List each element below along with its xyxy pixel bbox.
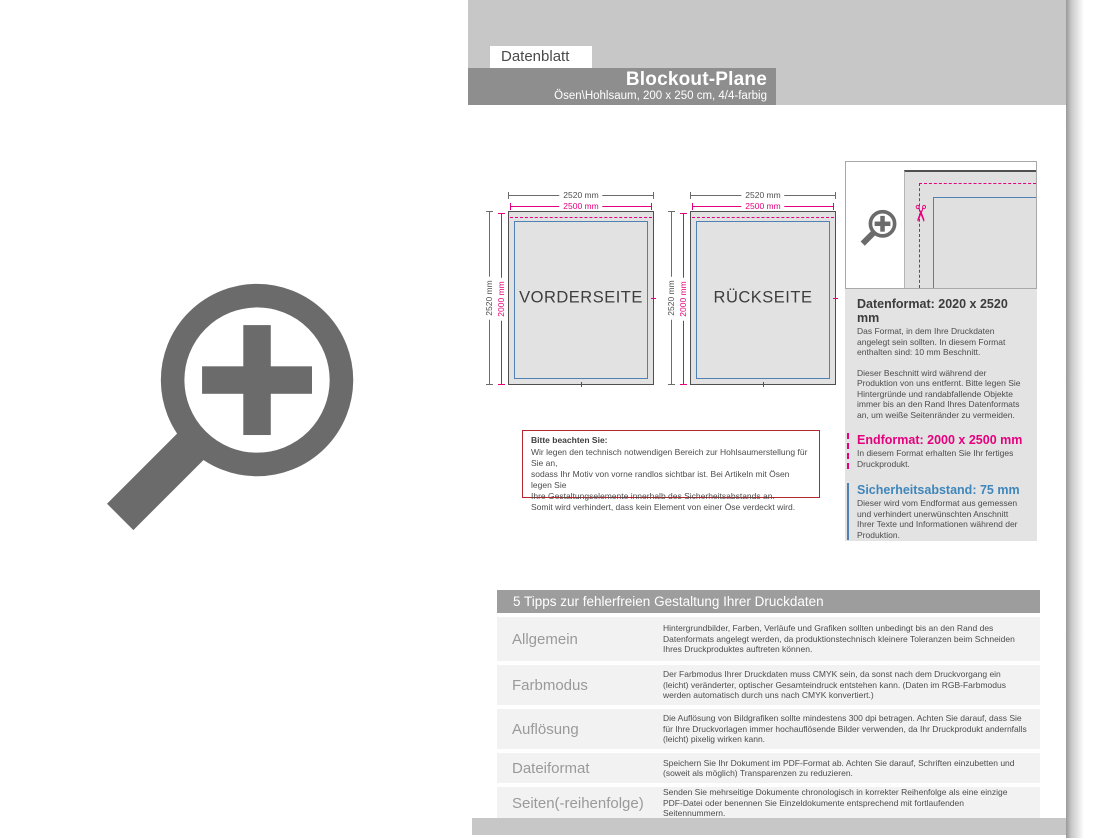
title-bar: Blockout-Plane Ösen\Hohlsaum, 200 x 250 …: [468, 68, 776, 105]
datasheet-page: Datenblatt Blockout-Plane Ösen\Hohlsaum,…: [468, 0, 1066, 838]
cut-line: [692, 217, 834, 218]
banner-corner-zoom: ✂: [904, 170, 1036, 288]
datenformat-para1: Das Format, in dem Ihre Druckdaten angel…: [857, 326, 1027, 358]
row-text: Hintergrundbilder, Farben, Verläufe und …: [663, 617, 1040, 661]
front-banner-outline: VORDERSEITE: [508, 211, 654, 385]
endformat-heading: Endformat: 2000 x 2500 mm: [857, 433, 1027, 447]
dim-height-endformat: 2000 mm: [676, 213, 690, 385]
dim-height-endformat: 2000 mm: [494, 213, 508, 385]
screenshot-root: Datenblatt Blockout-Plane Ösen\Hohlsaum,…: [0, 0, 1117, 838]
corner-detail-panel: ✂: [845, 161, 1037, 289]
note-line: Ihre Gestaltungselemente innerhalb des S…: [531, 491, 811, 502]
endformat-text: In diesem Format erhalten Sie Ihr fertig…: [857, 448, 1027, 469]
table-row: Seiten(-reihenfolge) Senden Sie mehrseit…: [497, 787, 1040, 819]
dim-label: 2000 mm: [678, 277, 688, 320]
center-tick: [763, 382, 764, 387]
endformat-block: Endformat: 2000 x 2500 mm In diesem Form…: [847, 433, 1027, 469]
dim-label: 2000 mm: [496, 277, 506, 320]
row-label: Seiten(-reihenfolge): [497, 787, 663, 819]
datenblatt-tab: Datenblatt: [490, 46, 592, 68]
zoom-plus-magnifier-small-icon: [860, 208, 898, 248]
datenformat-para2: Dieser Beschnitt wird während der Produk…: [857, 368, 1027, 421]
sicherheitsabstand-heading: Sicherheitsabstand: 75 mm: [857, 483, 1027, 497]
safety-line-corner: [933, 197, 1036, 288]
center-tick: [833, 298, 838, 299]
table-row: Allgemein Hintergrundbilder, Farben, Ver…: [497, 617, 1040, 661]
back-side-label: RÜCKSEITE: [691, 289, 835, 308]
table-row: Dateiformat Speichern Sie Ihr Dokument i…: [497, 753, 1040, 783]
page-subtitle: Ösen\Hohlsaum, 200 x 250 cm, 4/4-farbig: [468, 90, 767, 103]
page-title: Blockout-Plane: [468, 70, 767, 90]
note-line: sodass Ihr Motiv von vorne randlos sicht…: [531, 469, 811, 491]
note-line: Wir legen den technisch notwendigen Bere…: [531, 447, 811, 469]
table-row: Auflösung Die Auflösung von Bildgrafiken…: [497, 709, 1040, 749]
dim-label: 2500 mm: [559, 201, 602, 211]
row-text: Speichern Sie Ihr Dokument im PDF-Format…: [663, 753, 1040, 783]
sicherheitsabstand-block: Sicherheitsabstand: 75 mm Dieser wird vo…: [847, 483, 1027, 540]
row-label: Farbmodus: [497, 665, 663, 705]
row-label: Dateiformat: [497, 753, 663, 783]
datenformat-heading: Datenformat: 2020 x 2520 mm: [857, 297, 1027, 325]
note-line: Somit wird verhindert, dass kein Element…: [531, 502, 811, 513]
front-side-diagram: 2520 mm 2500 mm 2520 mm 2000 mm VORDERSE…: [480, 186, 660, 392]
cut-line: [510, 217, 652, 218]
center-tick: [581, 382, 582, 387]
front-side-label: VORDERSEITE: [509, 289, 653, 308]
row-text: Der Farbmodus Ihrer Druckdaten muss CMYK…: [663, 665, 1040, 705]
table-row: Farbmodus Der Farbmodus Ihrer Druckdaten…: [497, 665, 1040, 705]
note-title: Bitte beachten Sie:: [531, 435, 811, 446]
row-label: Auflösung: [497, 709, 663, 749]
center-tick: [651, 298, 656, 299]
scissors-icon: ✂: [907, 200, 934, 228]
page-edge-shadow: [1066, 0, 1084, 838]
zoom-plus-magnifier-icon: [100, 272, 365, 547]
tips-table-header: 5 Tipps zur fehlerfreien Gestaltung Ihre…: [497, 590, 1040, 613]
sicherheitsabstand-text: Dieser wird vom Endformat aus gemessen u…: [857, 498, 1027, 540]
dim-label: 2500 mm: [741, 201, 784, 211]
row-label: Allgemein: [497, 617, 663, 661]
row-text: Die Auflösung von Bildgrafiken sollte mi…: [663, 709, 1040, 749]
dim-label: 2520 mm: [484, 276, 494, 319]
footer-band: [472, 818, 1066, 835]
hohlsaum-note-box: Bitte beachten Sie: Wir legen den techni…: [522, 430, 820, 498]
back-banner-outline: RÜCKSEITE: [690, 211, 836, 385]
dim-label: 2520 mm: [666, 276, 676, 319]
row-text: Senden Sie mehrseitige Dokumente chronol…: [663, 787, 1040, 819]
tips-table: Allgemein Hintergrundbilder, Farben, Ver…: [497, 617, 1040, 819]
back-side-diagram: 2520 mm 2500 mm 2520 mm 2000 mm RÜCKSEIT…: [662, 186, 842, 392]
format-info-panel: Datenformat: 2020 x 2520 mm Das Format, …: [845, 289, 1037, 541]
